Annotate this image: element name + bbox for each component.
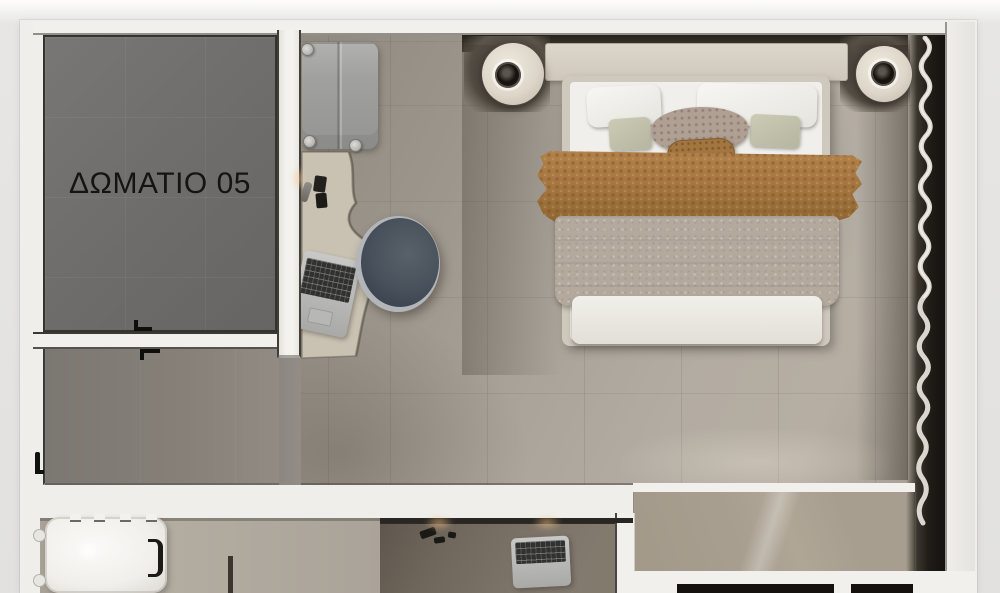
room-label: ΔΩΜΑΤΙΟ 05 [69,167,251,201]
wall-room05-bottom [33,332,281,349]
lower-room-panel [633,490,915,573]
wall-right [945,22,975,577]
throw-blanket [537,151,862,223]
door-hinge [94,514,105,522]
desk-lamp-glow [290,166,307,191]
lower-opening-shadow [380,518,633,523]
appliance-highlight [75,541,101,561]
lower-opening-dark [851,584,913,593]
sheer-curtain [908,36,944,541]
lower-room-laptop [511,536,572,589]
pendant-lamp-right [856,46,912,102]
floorplan: ΔΩΜΑΤΙΟ 05 [0,0,1000,593]
door-hinge [70,514,81,522]
door-handle [140,349,160,360]
wall-divider-vertical [277,30,301,358]
passage-floor [279,358,301,485]
door-hinge [146,514,157,522]
cushion-sage-left [608,117,652,152]
appliance-handle [148,539,163,577]
suitcase-wheel [301,43,314,56]
wall-panel-top [633,483,915,492]
corridor-floor [43,348,279,485]
cushion-sage-right [749,114,801,149]
laptop-keyboard [300,258,356,304]
lower-opening-dark [677,584,834,593]
suitcase-wheel [303,135,316,148]
suitcase [302,42,378,149]
appliance-foot [33,529,46,542]
lamp-shade-hole [871,61,896,86]
lower-wall-edge [228,556,233,593]
chair-seat [361,218,439,307]
appliance-foot [33,574,46,587]
door-hinge [120,514,131,522]
bed [545,38,848,350]
ceiling-light-glow [532,515,562,531]
lower-room-desk [380,521,617,593]
desk-camera [313,175,327,193]
desk-phone [315,193,327,209]
room05-floor: ΔΩΜΑΤΙΟ 05 [43,35,277,332]
door-handle [134,320,152,331]
desk-chair [356,216,440,312]
duvet [555,216,839,306]
laptop-keyboard [515,540,566,565]
door-handle [35,452,40,472]
lamp-shade-hole [495,62,521,88]
wall-lower-divider [615,513,635,593]
wall-top [33,22,947,35]
pendant-lamp-left [482,43,544,105]
lower-desk-item [448,531,457,538]
ceiling-light-glow [424,515,454,531]
foot-blanket [572,296,822,344]
laptop-trackpad [307,307,334,327]
